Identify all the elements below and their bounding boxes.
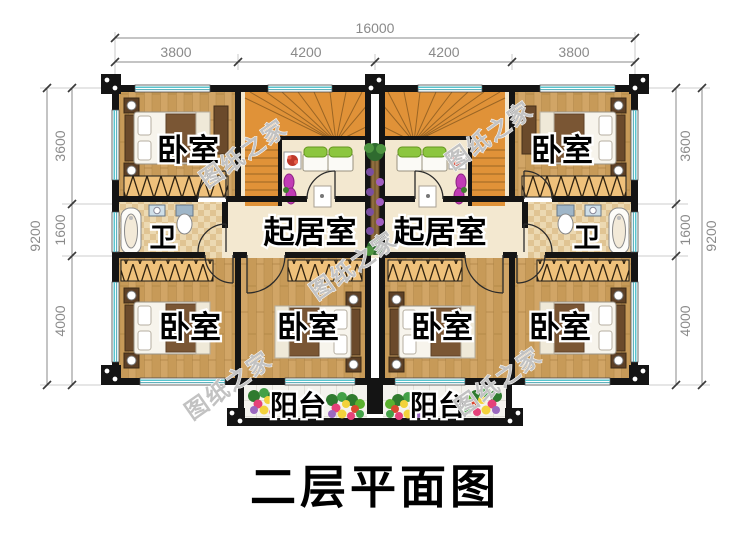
- dim-top-seg: 3800: [558, 44, 589, 60]
- dim-top-seg: 4200: [428, 44, 459, 60]
- dim-right-total: 9200: [703, 220, 719, 251]
- dim-right-seg: 3600: [677, 130, 693, 161]
- dim-right-seg: 4000: [677, 305, 693, 336]
- dim-top-seg: 3800: [160, 44, 191, 60]
- dim-left-seg: 1600: [52, 214, 68, 245]
- dim-top-total: 16000: [356, 20, 395, 36]
- page-title: 二层平面图: [250, 461, 500, 513]
- dim-right-seg: 1600: [677, 214, 693, 245]
- dim-left-seg: 3600: [52, 130, 68, 161]
- dim-top-seg: 4200: [290, 44, 321, 60]
- dim-left-total: 9200: [27, 220, 43, 251]
- room-label-bedroom: 卧室: [531, 133, 593, 168]
- room-label-bath: 卫: [150, 223, 177, 253]
- room-label-living: 起居室: [394, 215, 487, 250]
- room-label-balcony: 阳台: [270, 389, 326, 421]
- room-label-bath: 卫: [574, 223, 601, 253]
- dim-left-seg: 4000: [52, 305, 68, 336]
- room-label-bedroom: 卧室: [159, 310, 221, 345]
- room-label-bedroom: 卧室: [529, 310, 591, 345]
- room-label-bedroom: 卧室: [411, 310, 473, 345]
- room-label-bedroom: 卧室: [277, 310, 339, 345]
- floor-plan-page: 卧室 卧室 卧室 卧室 卧室 卧室 起居室 起居室 卫 卫 阳台 阳台 图纸之家…: [0, 0, 750, 533]
- room-label-living: 起居室: [264, 215, 357, 250]
- floor-plan-canvas: 卧室 卧室 卧室 卧室 卧室 卧室 起居室 起居室 卫 卫 阳台 阳台 图纸之家…: [0, 0, 750, 533]
